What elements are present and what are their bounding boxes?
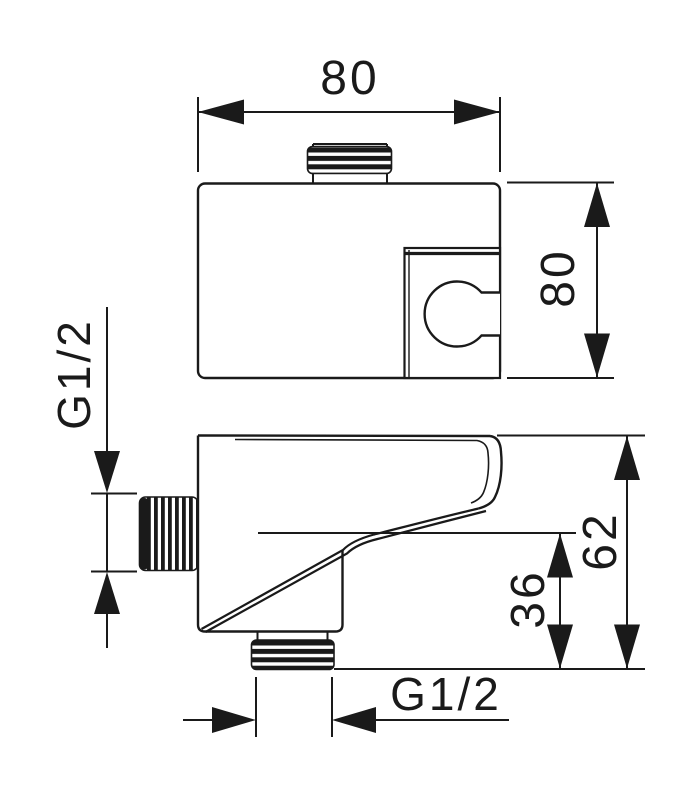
spout-underside-lower-line bbox=[206, 511, 487, 632]
dim-front-height-label: 80 bbox=[532, 248, 585, 307]
arrowhead-left-icon bbox=[198, 100, 244, 125]
dim-inlet-thread-label: G1/2 bbox=[48, 318, 100, 430]
dim-depth-total-label: 62 bbox=[574, 511, 627, 570]
arrowhead-down-icon bbox=[547, 625, 573, 669]
outlet-neck bbox=[258, 632, 328, 641]
side-view bbox=[140, 436, 577, 670]
arrowhead-up-icon bbox=[584, 183, 610, 227]
arrowhead-up-icon bbox=[614, 436, 640, 480]
arrowhead-right-icon bbox=[454, 100, 500, 125]
side-top-edge bbox=[198, 436, 490, 437]
top-view bbox=[198, 144, 500, 378]
dim-outlet-offset: 36 bbox=[502, 533, 573, 669]
arrowhead-down-icon bbox=[614, 625, 640, 669]
dim-front-height: 80 bbox=[507, 183, 614, 379]
dim-depth-total: 62 bbox=[334, 436, 645, 670]
top-thread-ridges bbox=[308, 147, 392, 174]
dim-outlet-thread: G1/2 bbox=[183, 668, 509, 737]
arrowhead-up-icon bbox=[94, 572, 120, 614]
arrowhead-down-icon bbox=[584, 334, 610, 378]
inlet-thread-end-cap bbox=[141, 498, 149, 570]
dim-outlet-offset-label: 36 bbox=[502, 569, 555, 628]
spout-inner-edge bbox=[235, 440, 489, 504]
dim-outlet-thread-label: G1/2 bbox=[390, 668, 502, 720]
outlet-thread-ridges bbox=[252, 640, 335, 670]
drawing-canvas: 80 80 G1/2 62 36 G1/2 bbox=[0, 0, 699, 800]
arrowhead-left-icon bbox=[332, 707, 376, 733]
dim-top-width-label: 80 bbox=[320, 52, 379, 105]
arrowhead-down-icon bbox=[94, 451, 120, 493]
dim-inlet-thread: G1/2 bbox=[48, 307, 137, 648]
technical-drawing: 80 80 G1/2 62 36 G1/2 bbox=[0, 0, 699, 800]
arrowhead-right-icon bbox=[212, 707, 256, 733]
spout-right-edge bbox=[479, 436, 502, 509]
